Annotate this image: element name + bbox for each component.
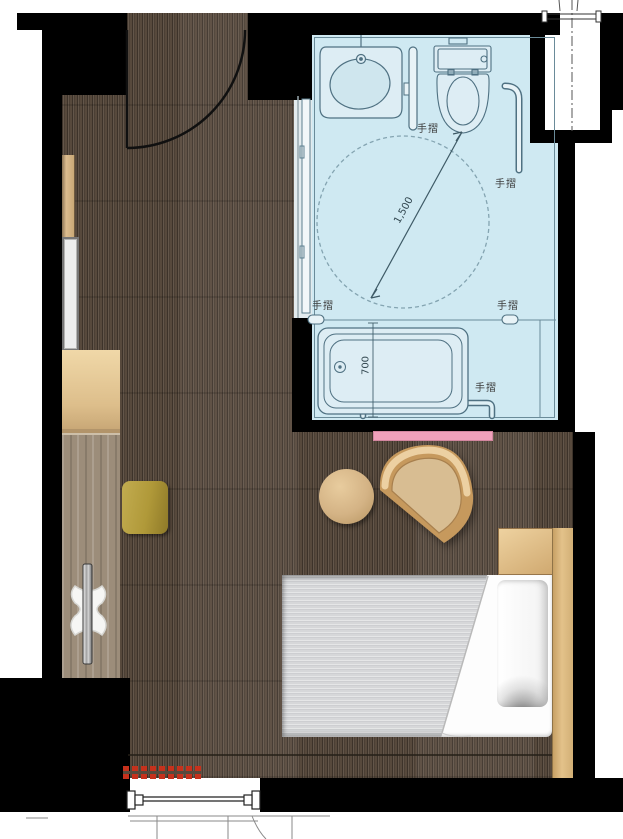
door-swing-icon [127,30,245,148]
turning-circle-dimension-line [371,132,462,298]
handrail-label-shower-left: 手摺 [312,301,334,313]
grab-bar-toilet-vertical [404,47,417,130]
handrail-label-shower-right: 手摺 [497,301,519,313]
pipe-shaft-symbol [542,0,601,131]
sheet-fold-line [442,576,488,737]
plan-linework [0,0,623,839]
floor-plan: 手摺 手摺 手摺 手摺 手摺 1,500 700 [0,0,623,839]
entry-door [127,30,245,148]
toilet [434,38,491,133]
bathtub-dimension: 700 [361,350,372,382]
bathroom-sliding-door [298,96,310,318]
handrail-label-bathtub: 手摺 [475,383,497,395]
bottom-window [127,791,260,809]
handrail-label-wall: 手摺 [495,179,517,191]
grab-bar-L-wall [505,86,519,170]
window-sill-lines [26,816,330,839]
handrail-label-toilet: 手摺 [417,124,439,136]
sink [320,35,402,118]
bathtub [318,328,468,414]
